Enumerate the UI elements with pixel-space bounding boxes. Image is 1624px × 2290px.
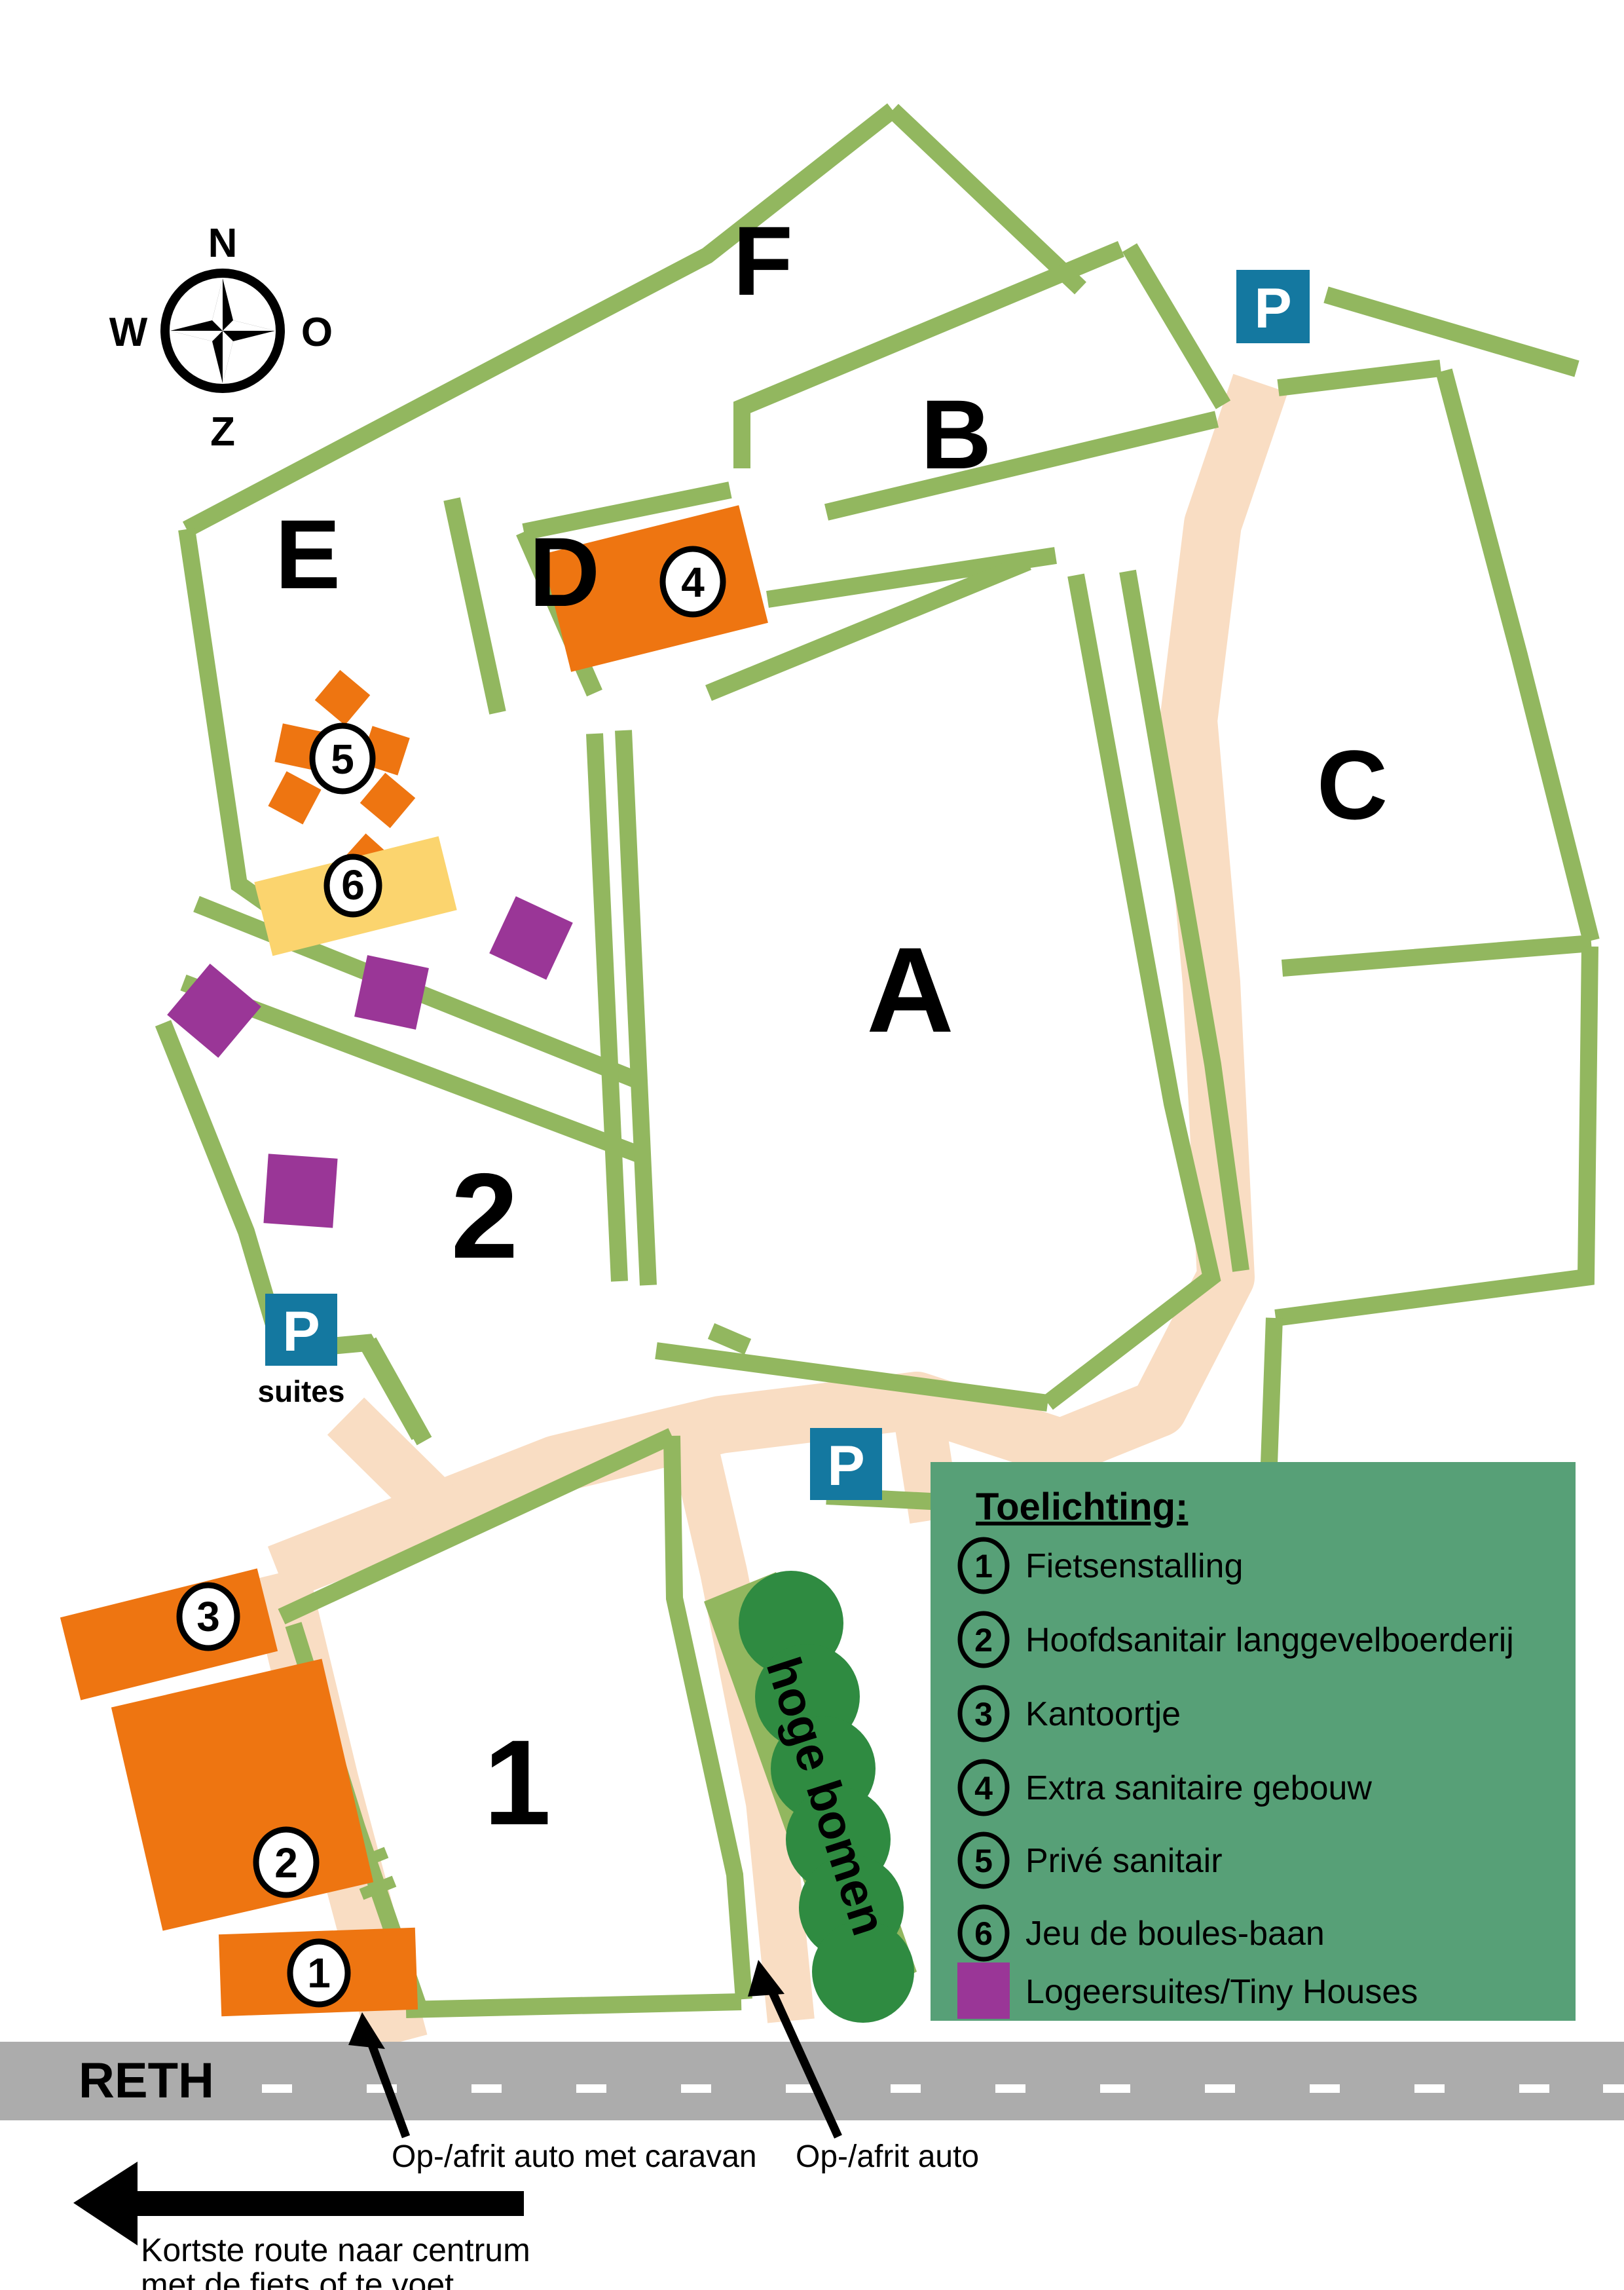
marker-5: 5 [331,736,354,783]
legend-item-6: Jeu de boules-baan [1025,1915,1325,1953]
street-name: RETH [79,2053,214,2109]
parking-mid-letter: P [827,1435,864,1497]
legend-num-5: 5 [974,1843,993,1879]
legend-item-tiny-houses: Logeersuites/Tiny Houses [1025,1973,1418,2011]
marker-2: 2 [274,1839,298,1886]
compass-east-label: O [301,310,333,355]
field-b-label: B [921,379,991,489]
marker-4: 4 [681,559,705,606]
compass-north-label: N [208,221,238,266]
caravan-entry-label: Op-/afrit auto met caravan [392,2139,757,2174]
field-c-label: C [1317,730,1388,840]
field-1-label: 1 [484,1716,551,1850]
buildings [60,505,768,2016]
suites-road-stub [346,1416,444,1513]
compass-west-label: W [109,310,148,355]
marker-6: 6 [341,861,365,909]
route-arrow-shaft [134,2191,524,2216]
legend-item-1: Fietsenstalling [1025,1547,1243,1585]
field-f-label: F [733,206,793,316]
legend-num-2: 2 [974,1622,993,1659]
legend-title: Toelichting: [976,1486,1188,1528]
field-a-label: A [866,923,954,1058]
legend: Toelichting: 1 Fietsenstalling 2 Hoofdsa… [931,1462,1576,2021]
legend-item-4: Extra sanitaire gebouw [1025,1769,1372,1807]
marker-3: 3 [196,1593,220,1640]
route-arrow-icon [73,2162,138,2245]
parking-suites-letter: P [282,1300,320,1363]
compass-icon: N W O Z [109,221,333,455]
suites-label: suites [258,1374,345,1408]
compass-south-label: Z [210,409,235,455]
legend-item-2: Hoofdsanitair langgevelboerderij [1025,1621,1514,1659]
route-label-line1: Kortste route naar centrum [141,2232,530,2268]
legend-item-5: Privé sanitair [1025,1842,1223,1880]
legend-num-1: 1 [974,1548,993,1585]
legend-num-3: 3 [974,1696,993,1733]
field-2-label: 2 [451,1149,519,1284]
route-label-line2: met de fiets of te voet [141,2266,454,2290]
legend-item-3: Kantoortje [1025,1695,1181,1733]
field-d-label: D [529,517,600,627]
campsite-map: hoge bomen 1 2 3 4 5 [0,0,1624,2290]
parking-top-letter: P [1254,277,1291,340]
route-to-centre: Kortste route naar centrum met de fiets … [73,2162,530,2290]
legend-num-4: 4 [974,1770,993,1807]
tiny-houses-swatch [957,1962,1010,2019]
field-e-label: E [275,499,341,609]
marker-1: 1 [307,1949,331,1997]
auto-entry-label: Op-/afrit auto [796,2139,979,2174]
legend-num-6: 6 [974,1915,993,1952]
